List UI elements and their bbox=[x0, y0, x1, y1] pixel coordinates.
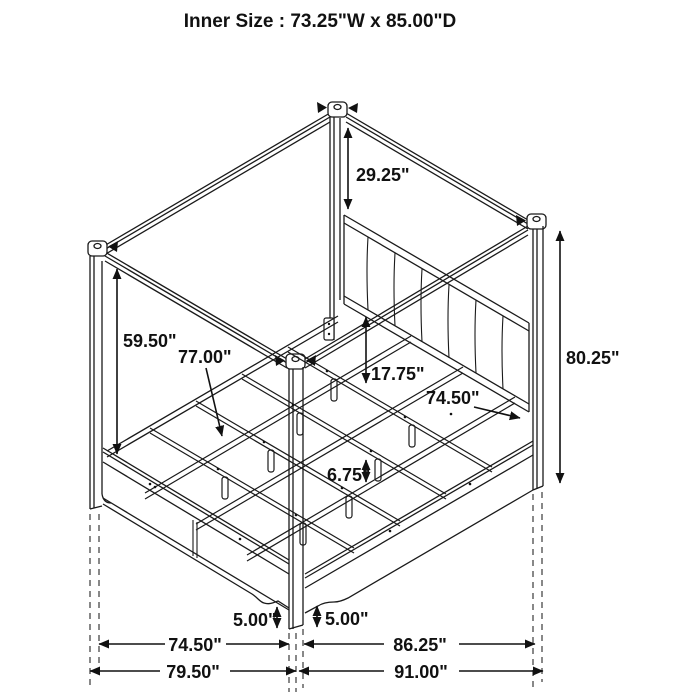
dim-label-post-height: 80.25" bbox=[566, 348, 620, 368]
footboard bbox=[103, 448, 289, 610]
dim-label-siderail-clearance: 5.00" bbox=[325, 609, 369, 629]
dim-label-side-span: 86.25" bbox=[393, 635, 447, 655]
leader-slat-rail-length bbox=[206, 368, 222, 436]
slat-legs bbox=[222, 379, 415, 545]
bed-dimension-diagram-page: Inner Size : 73.25"W x 85.00"D 29.25" 59… bbox=[0, 0, 700, 700]
leader-side-rail-length bbox=[474, 407, 520, 418]
dim-label-canopy-to-footboard: 59.50" bbox=[123, 331, 177, 351]
dim-label-overall-depth: 91.00" bbox=[394, 662, 448, 682]
canopy-frame bbox=[104, 113, 528, 368]
dim-label-side-rail-length: 74.50" bbox=[426, 388, 480, 408]
dim-label-slat-rail-length: 77.00" bbox=[178, 347, 232, 367]
page-title: Inner Size : 73.25"W x 85.00"D bbox=[184, 11, 457, 32]
extension-lines bbox=[90, 492, 542, 692]
bed-isometric-drawing: Inner Size : 73.25"W x 85.00"D 29.25" 59… bbox=[0, 0, 700, 700]
dim-label-footboard-clearance: 5.00" bbox=[233, 610, 277, 630]
dim-label-footboard-span: 74.50" bbox=[168, 635, 222, 655]
dim-label-rail-to-slat: 17.75" bbox=[371, 364, 425, 384]
dim-label-canopy-to-headboard: 29.25" bbox=[356, 165, 410, 185]
dimension-arrows bbox=[90, 128, 560, 671]
dim-label-leg-height: 6.75" bbox=[327, 465, 371, 485]
corner-joint-pointers bbox=[108, 102, 526, 366]
dim-label-overall-width: 79.50" bbox=[166, 662, 220, 682]
